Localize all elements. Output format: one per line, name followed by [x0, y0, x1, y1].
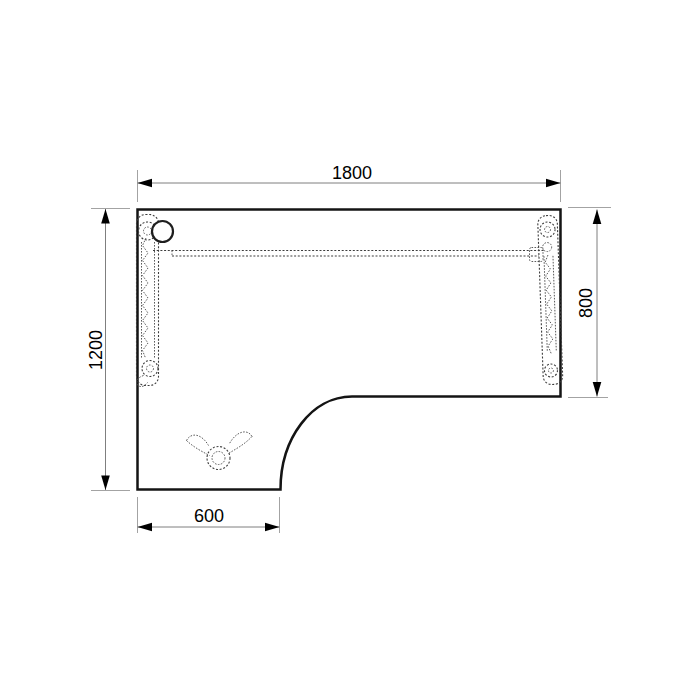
dimension-label-right: 800 — [576, 288, 596, 318]
arrowhead-right-icon — [265, 523, 280, 532]
dimension-bottom-width: 600 — [138, 497, 280, 533]
dimension-top-width: 1800 — [138, 163, 561, 202]
arrowhead-up-icon — [593, 210, 602, 225]
dimension-label-left: 1200 — [86, 330, 106, 370]
arrowhead-right-icon — [546, 179, 561, 188]
desk-top-outline — [138, 210, 561, 490]
dimension-left-depth: 1200 — [86, 209, 131, 491]
arrowhead-up-icon — [101, 209, 110, 224]
dimension-label-top: 1800 — [332, 163, 372, 183]
arrowhead-left-icon — [138, 179, 153, 188]
arrowhead-down-icon — [101, 476, 110, 491]
dimension-right-depth: 800 — [568, 208, 611, 398]
dimension-label-bottom: 600 — [194, 506, 224, 526]
technical-drawing-page: 1800 1200 800 600 — [0, 0, 700, 700]
arrowhead-left-icon — [138, 523, 153, 532]
arrowhead-down-icon — [593, 382, 602, 397]
technical-drawing-canvas: 1800 1200 800 600 — [0, 0, 700, 700]
cable-grommet-icon — [152, 221, 173, 242]
